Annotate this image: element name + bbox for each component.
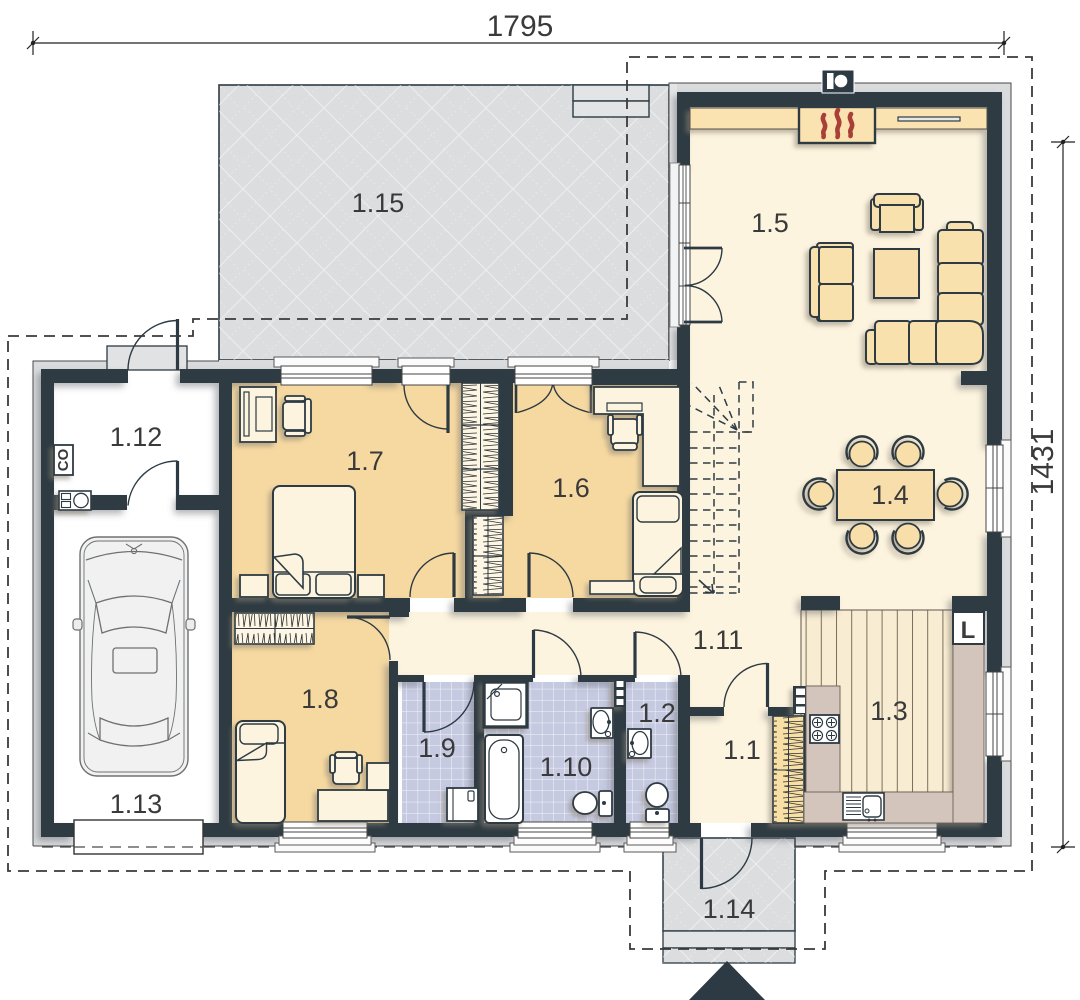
svg-text:1.8: 1.8 [301,684,339,714]
svg-text:1.6: 1.6 [552,473,590,503]
svg-text:1.11: 1.11 [693,625,744,655]
svg-text:1.9: 1.9 [418,733,456,763]
svg-text:L: L [961,617,976,644]
svg-text:1.14: 1.14 [703,894,756,924]
svg-text:1.5: 1.5 [751,208,789,238]
svg-text:1.15: 1.15 [352,188,405,218]
svg-text:1.3: 1.3 [870,696,908,726]
svg-text:CO: CO [55,448,72,471]
svg-text:1.7: 1.7 [346,446,384,476]
svg-text:1431: 1431 [1027,429,1060,496]
svg-text:1.1: 1.1 [723,735,761,765]
svg-text:1.13: 1.13 [110,789,163,819]
svg-text:1.4: 1.4 [871,480,909,510]
svg-text:1.2: 1.2 [638,698,676,728]
svg-text:1.12: 1.12 [110,422,163,452]
svg-text:1795: 1795 [487,10,554,43]
svg-text:1.10: 1.10 [540,752,593,782]
